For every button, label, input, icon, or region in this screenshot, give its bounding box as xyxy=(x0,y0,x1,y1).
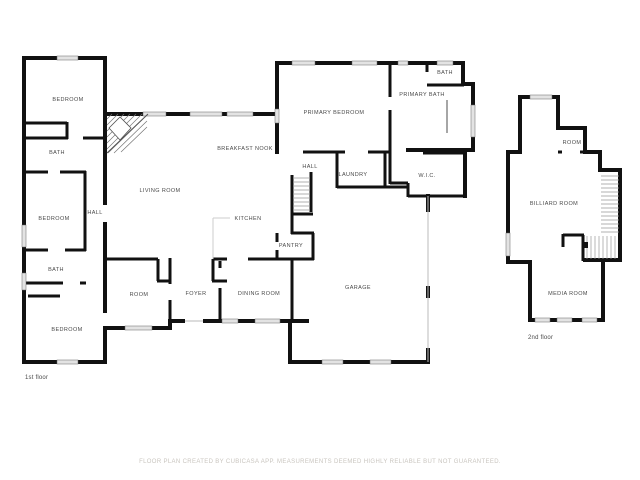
room-label-hall-west: HALL xyxy=(87,210,102,216)
room-label-dining-room: DINING ROOM xyxy=(238,291,280,297)
room-label-laundry: LAUNDRY xyxy=(339,172,368,178)
room-label-kitchen: KITCHEN xyxy=(235,216,262,222)
floor-plan-drawing xyxy=(0,0,640,480)
room-label-billiard-room: BILLIARD ROOM xyxy=(530,201,578,207)
footer-disclaimer: FLOOR PLAN CREATED BY CUBICASA APP. MEAS… xyxy=(139,459,501,465)
floor-plan-canvas: BEDROOM BATH BEDROOM HALL BATH BEDROOM L… xyxy=(0,0,640,480)
room-label-pantry: PANTRY xyxy=(279,243,303,249)
room-label-bath-lower: BATH xyxy=(48,267,64,273)
room-label-bedroom-sw: BEDROOM xyxy=(51,327,82,333)
room-label-foyer: FOYER xyxy=(186,291,207,297)
room-label-breakfast-nook: BREAKFAST NOOK xyxy=(217,146,273,152)
first-floor-label: 1st floor xyxy=(25,375,48,381)
room-label-bath-ne: BATH xyxy=(437,70,453,76)
room-label-garage: GARAGE xyxy=(345,285,371,291)
room-label-primary-bath: PRIMARY BATH xyxy=(399,92,444,98)
room-label-primary-bedroom: PRIMARY BEDROOM xyxy=(304,110,365,116)
entry-winder-stairs-hatch xyxy=(107,114,148,153)
room-label-hall-center: HALL xyxy=(302,164,317,170)
room-label-bedroom-nw: BEDROOM xyxy=(52,97,83,103)
room-label-bedroom-w: BEDROOM xyxy=(38,216,69,222)
room-label-room: ROOM xyxy=(130,292,149,298)
second-floor-exterior-walls xyxy=(506,95,622,322)
room-label-media-room: MEDIA ROOM xyxy=(548,291,588,297)
room-label-bath-upper: BATH xyxy=(49,150,65,156)
second-floor-label: 2nd floor xyxy=(528,335,553,341)
room-label-living-room: LIVING ROOM xyxy=(139,188,180,194)
second-floor-stairs-treads xyxy=(582,176,619,259)
room-label-room-2f: ROOM xyxy=(563,140,582,146)
main-stairs-treads xyxy=(293,178,310,210)
kitchen-counter-lines xyxy=(213,218,230,259)
room-label-wic: W.I.C. xyxy=(418,173,435,179)
first-floor-interior-walls xyxy=(24,62,467,329)
